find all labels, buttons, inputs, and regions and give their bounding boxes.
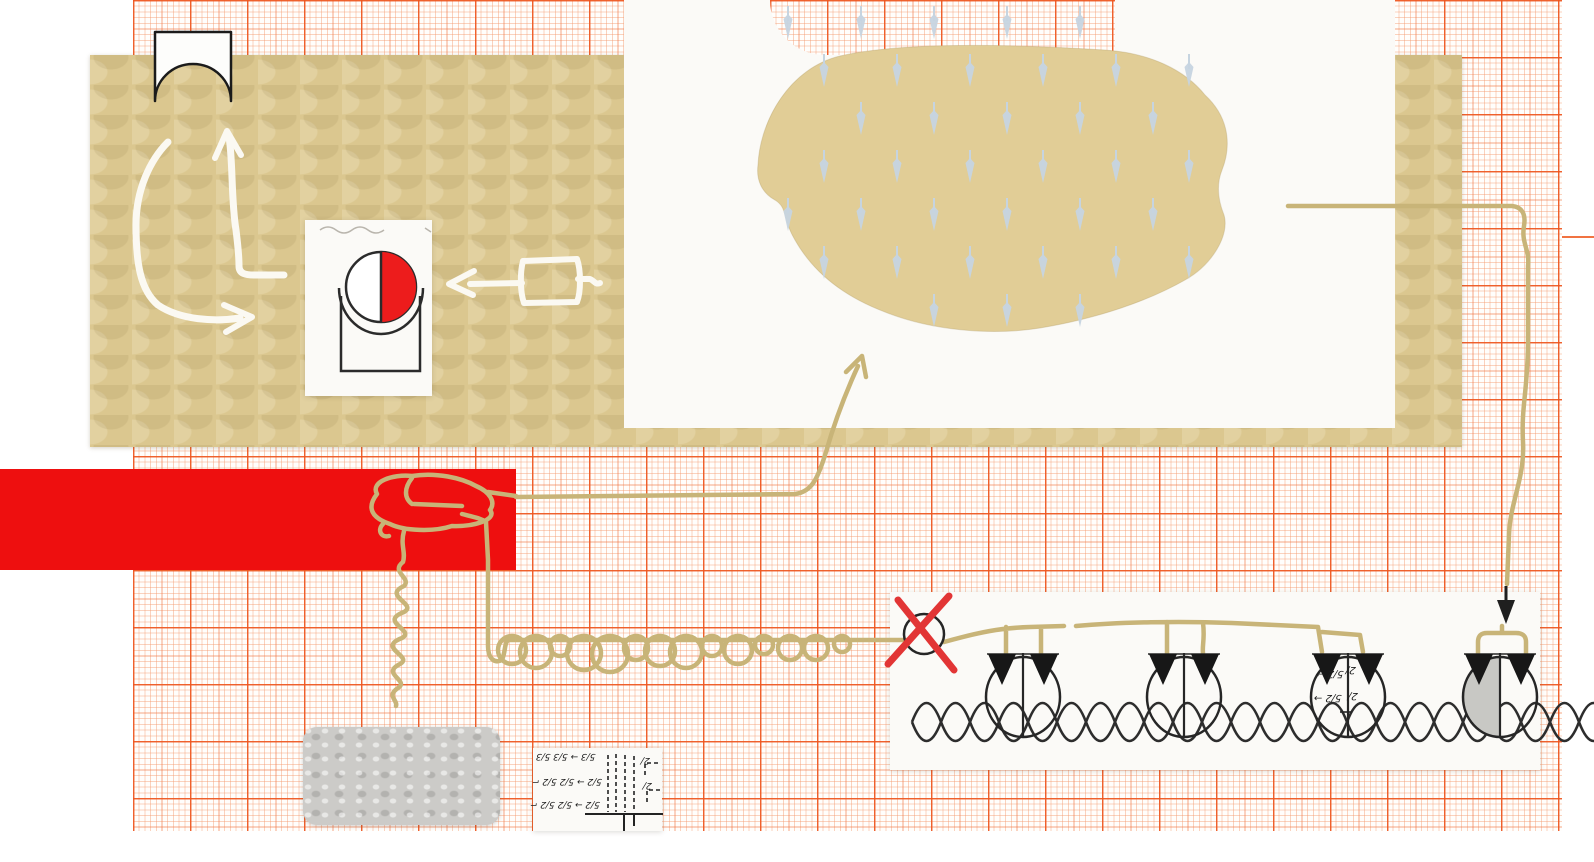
graph-paper-patch: [770, 0, 1115, 55]
valve3-label: 2/: [1345, 664, 1356, 675]
top-white-panel: [624, 0, 1395, 428]
valve-schematic-panel: [890, 592, 1540, 770]
stray-grid-line: [1562, 236, 1594, 238]
red-rectangle: [0, 469, 516, 570]
valve3-label: 2/: [1347, 690, 1358, 701]
valve3-label: 5/2 →: [1313, 692, 1342, 703]
ball-socket-panel: [305, 220, 432, 396]
collage-canvas: 5/2 → 5/2 → 2/ 2/ 5/3 → 5/3 5/3 5/2 → 5/…: [0, 0, 1594, 862]
mini-right-label: 2/: [640, 755, 650, 765]
mini-right-label: 2/: [642, 780, 652, 790]
mini-row-label: 5/3 → 5/3 5/3: [535, 751, 596, 761]
mini-row-label: 5/2 → 5/2 5/2 ⌐: [529, 799, 600, 809]
gray-textured-patch: [303, 727, 500, 825]
valve3-label: 5/2 →: [1315, 668, 1344, 679]
mini-row-label: 5/2 → 5/2 5/2 ⌐: [531, 776, 602, 786]
